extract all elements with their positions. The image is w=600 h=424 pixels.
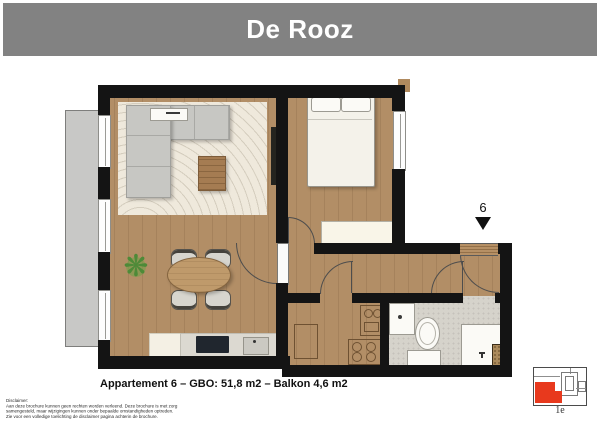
disclaimer-line: Zie voor een volledige toelichting de di… bbox=[6, 414, 306, 419]
window-left-1 bbox=[98, 115, 111, 169]
pillow bbox=[341, 97, 371, 112]
floor-label: 1e bbox=[533, 405, 587, 416]
disclaimer: Disclaimer: Aan deze brochure kunnen gee… bbox=[6, 398, 306, 419]
entrance-door bbox=[460, 243, 498, 256]
faucet bbox=[253, 340, 256, 343]
minimap-highlight bbox=[555, 391, 562, 403]
hob-outline bbox=[366, 342, 376, 352]
door-leaf bbox=[288, 217, 289, 243]
hob-outline bbox=[352, 352, 362, 362]
bath-mat bbox=[407, 350, 441, 366]
appliance-outline bbox=[294, 324, 318, 359]
wall bbox=[495, 293, 512, 303]
unit-number: 6 bbox=[479, 200, 486, 215]
wall bbox=[98, 85, 110, 115]
coffee-table bbox=[198, 156, 226, 191]
minimap-highlight bbox=[535, 382, 555, 403]
washbasin bbox=[389, 303, 415, 335]
page-title: De Rooz bbox=[3, 3, 597, 56]
appliance-outline bbox=[364, 322, 379, 332]
window-left-2 bbox=[98, 199, 111, 254]
appliance-outline bbox=[364, 309, 373, 318]
minimap-room bbox=[578, 381, 586, 392]
wall bbox=[392, 85, 405, 111]
brochure-page: De Rooz ❋ bbox=[0, 0, 600, 424]
wall bbox=[98, 167, 110, 199]
wall bbox=[98, 85, 405, 98]
wall bbox=[314, 243, 392, 254]
wall bbox=[498, 243, 512, 254]
wall bbox=[98, 356, 290, 369]
hob-outline bbox=[352, 342, 362, 352]
dining-table bbox=[167, 257, 231, 293]
header-bar: De Rooz bbox=[3, 3, 597, 56]
kitchen-sink bbox=[243, 337, 269, 355]
marker-arrow-icon bbox=[475, 217, 491, 230]
closet bbox=[321, 221, 394, 245]
shower-drain bbox=[481, 354, 483, 358]
balcony bbox=[65, 110, 100, 347]
plan-caption: Appartement 6 – GBO: 51,8 m2 – Balkon 4,… bbox=[100, 378, 348, 390]
wall bbox=[282, 365, 512, 377]
wall bbox=[98, 252, 110, 290]
location-minimap bbox=[533, 367, 587, 406]
pillow bbox=[311, 97, 341, 112]
stairwell bbox=[565, 376, 574, 391]
basin-drain bbox=[398, 315, 402, 319]
duvet-fold bbox=[308, 119, 372, 120]
minimap-line bbox=[534, 376, 560, 377]
wall bbox=[352, 293, 463, 303]
wall bbox=[276, 85, 288, 243]
remote bbox=[166, 112, 180, 114]
hob-outline bbox=[366, 352, 376, 362]
bedroom-window bbox=[393, 111, 406, 171]
cooktop bbox=[196, 336, 229, 353]
dining-chair bbox=[171, 290, 197, 310]
kitchen-cabinet bbox=[149, 333, 182, 358]
wall bbox=[380, 296, 389, 368]
wall bbox=[392, 243, 460, 254]
door-leaf bbox=[277, 243, 289, 285]
sofa-tray bbox=[150, 108, 188, 121]
plant: ❋ bbox=[119, 250, 153, 284]
wall bbox=[282, 293, 320, 303]
unit-marker: 6 bbox=[468, 200, 498, 215]
dining-chair bbox=[205, 290, 231, 310]
minimap-line bbox=[576, 388, 586, 389]
wall bbox=[500, 254, 512, 377]
door-leaf bbox=[351, 261, 352, 293]
toilet-seat bbox=[419, 322, 436, 345]
wall bbox=[392, 169, 405, 254]
window-left-3 bbox=[98, 290, 111, 342]
